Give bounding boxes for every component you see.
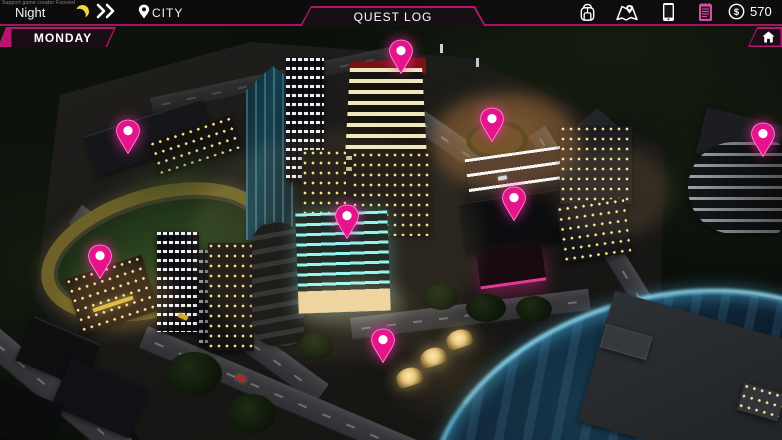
map-pin-icon (138, 4, 150, 24)
map-pin-seaside-hotel[interactable] (750, 122, 776, 158)
planner-button[interactable] (692, 2, 718, 22)
dollar-coin-icon: $ (728, 3, 745, 20)
crescent-moon-icon (75, 4, 90, 19)
smartphone-icon (662, 2, 675, 22)
game-screen: Support game creator Fooxied Night CITY … (0, 0, 782, 440)
map-pin-park-plaza[interactable] (479, 107, 505, 143)
home-icon (762, 31, 775, 43)
map-pin-estate[interactable] (115, 119, 141, 155)
svg-text:$: $ (734, 7, 740, 18)
map-pin-stadium-pub[interactable] (87, 244, 113, 280)
skip-time-button[interactable] (95, 3, 117, 20)
inventory-button[interactable] (574, 2, 600, 22)
top-hud-bar: Support game creator Fooxied Night CITY … (0, 0, 782, 26)
money-amount: 570 (750, 4, 772, 19)
money-counter: $ 570 (728, 3, 772, 20)
planner-clipboard-icon (698, 2, 713, 22)
time-of-day-label: Night (15, 5, 45, 20)
city-map-icon (615, 3, 639, 22)
map-pin-neon-mall[interactable] (334, 204, 360, 240)
map-pin-downtown-tower[interactable] (388, 39, 414, 75)
backpack-icon (578, 3, 597, 22)
quest-log-label: QUEST LOG (354, 10, 433, 24)
quest-log-button[interactable]: QUEST LOG (300, 6, 486, 26)
day-label: MONDAY (34, 31, 92, 45)
watermark: Support game creator Fooxied (2, 0, 75, 6)
city-map-button[interactable] (614, 2, 640, 22)
phone-button[interactable] (655, 2, 681, 22)
location-label: CITY (152, 6, 183, 20)
map-pin-beach[interactable] (370, 328, 396, 364)
fast-forward-chevrons-icon (95, 3, 117, 19)
map-pins-layer (0, 0, 782, 440)
map-pin-office-block[interactable] (501, 186, 527, 222)
day-banner: MONDAY (10, 27, 116, 47)
